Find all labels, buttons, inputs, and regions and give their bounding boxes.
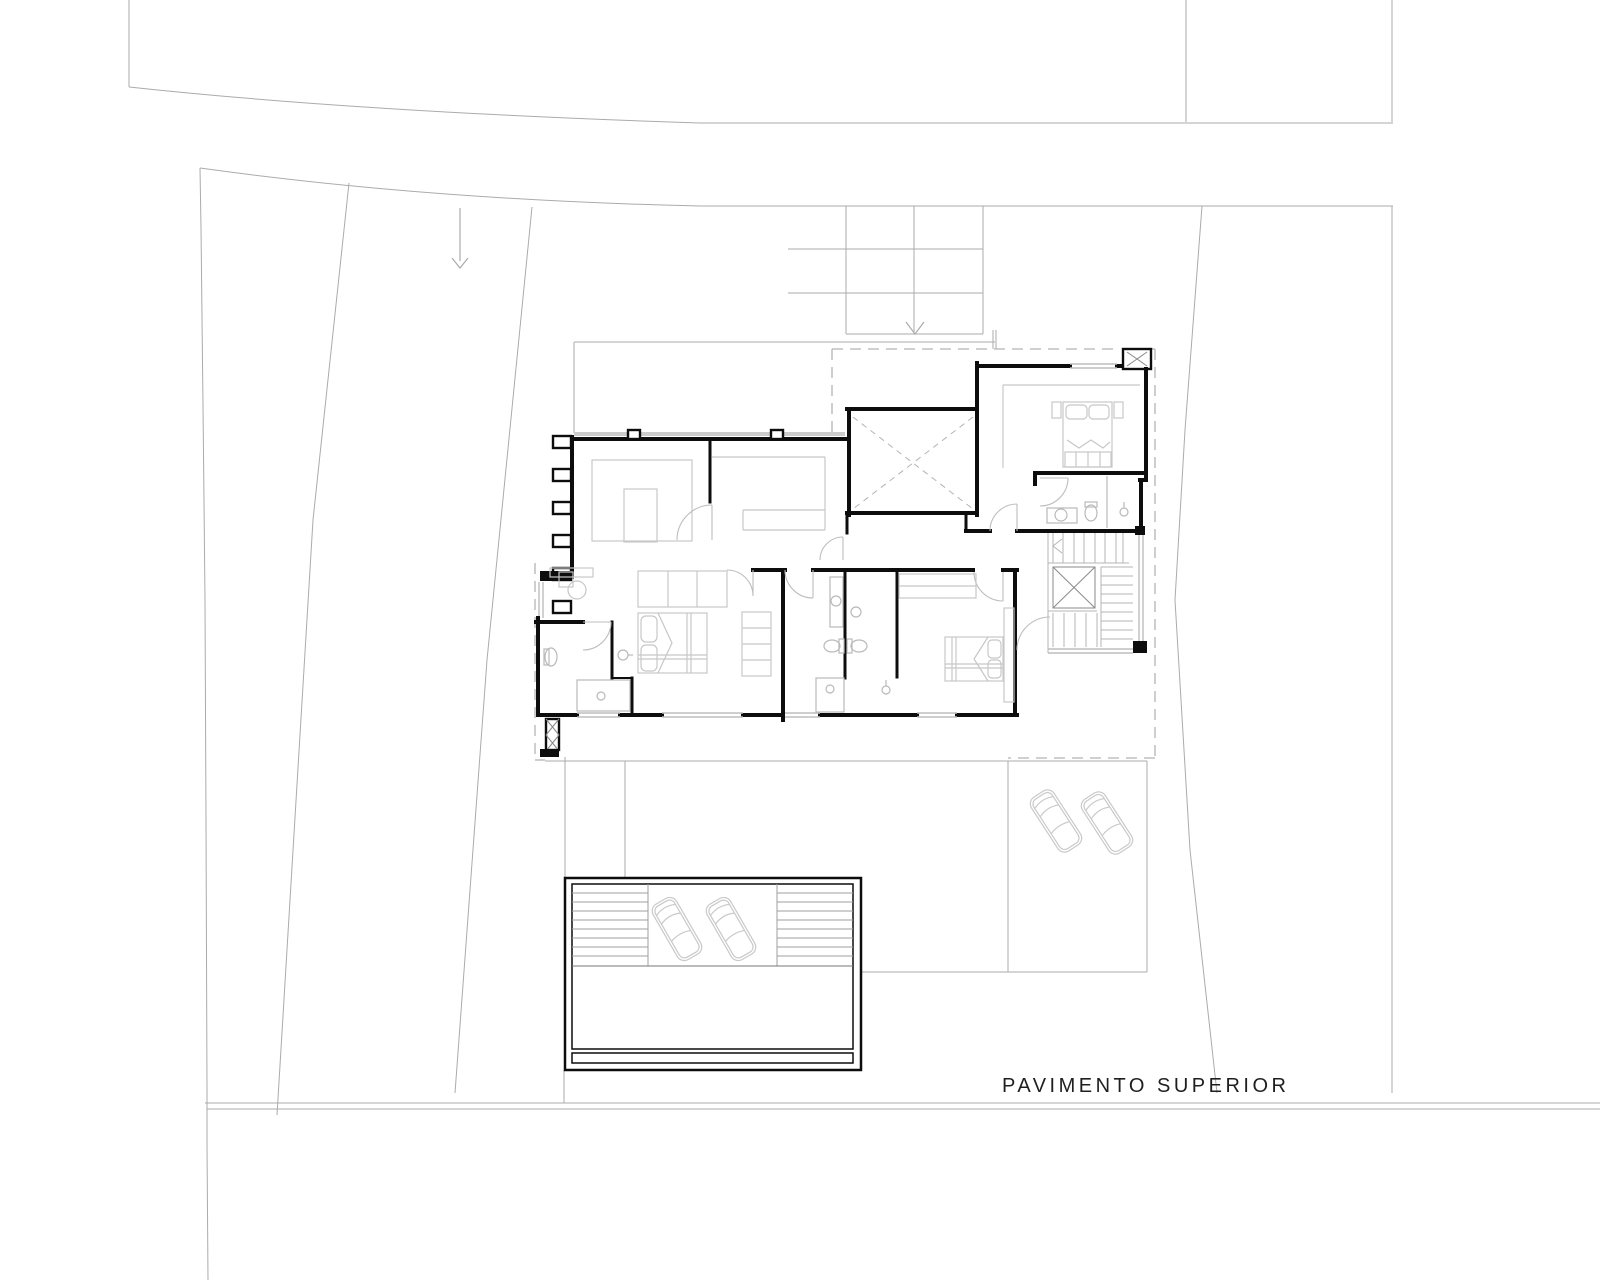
south-wall [538,713,1017,717]
west-terrace-line [455,207,532,1093]
chimney-pillar [540,719,559,757]
west-setback-line [277,183,349,1115]
entry-arrow-east [906,322,924,334]
shower [816,678,844,712]
wardrobe [638,571,727,607]
bathroom-2 [783,570,845,720]
floor-plan-drawing: PAVIMENTO SUPERIOR [0,0,1600,1280]
walk-in-closet [742,612,771,676]
entry-paving-grid [788,206,996,349]
stair-direction-arrow [1053,539,1062,553]
car-2 [703,895,758,964]
gutter-strip [572,1053,853,1063]
bathroom-1 [536,618,633,713]
door-swing [727,570,753,596]
toilet [545,648,557,666]
shower-drain [597,692,605,700]
site-boundaries [129,0,1600,1280]
arrow-down-icon [906,322,924,334]
closet-room [712,457,843,560]
window-mullion [771,430,783,439]
window-mullion [628,430,640,439]
car-1 [649,895,704,964]
chair [568,581,586,599]
staircase [1017,526,1147,653]
nightstand [1052,402,1061,418]
door-swing [677,505,712,540]
terrace-edges [545,342,1147,1103]
road-upper-edge [129,87,1393,123]
pillow [1089,405,1109,419]
rug [624,489,657,542]
wall-cap [1135,526,1145,535]
plan-title-label: PAVIMENTO SUPERIOR [1002,1075,1289,1097]
floor-plan [536,349,1151,757]
shower-head [882,686,890,694]
blanket-fold [1067,440,1110,448]
bedroom-3 [897,570,1015,715]
sink [831,596,841,606]
door-swing [1017,617,1050,650]
pergola-slats-right [777,893,853,956]
toilet [824,640,840,652]
family-room [559,440,712,587]
sink [1055,509,1067,521]
carport-pergola [565,878,861,1070]
door-swing [1040,478,1068,506]
door-swing [820,537,843,560]
void-room [847,363,977,533]
west-lot-line [200,168,208,1280]
blanket-fold [658,613,672,673]
bedroom-2 [977,349,1151,531]
door-swing [974,572,1003,601]
wardrobe [1004,608,1014,702]
door-swing [583,622,611,650]
pillow [988,640,1001,658]
door-swing [990,504,1017,531]
pillow [641,616,657,642]
bathroom-3 [847,607,890,694]
nightstand [1114,402,1123,418]
sofa-group [592,460,692,541]
car-4 [1078,789,1136,857]
sink [618,650,628,660]
shower-head [1120,508,1128,516]
shower-drain [826,685,834,693]
blanket-fold [974,637,988,681]
east-setback-line [1175,206,1217,1093]
drawing-canvas: PAVIMENTO SUPERIOR [0,0,1600,1280]
shower [577,680,630,711]
toilet [851,640,867,652]
void-x-mark [853,417,973,509]
bathroom-suite [1035,473,1146,528]
wall-cap [1133,641,1147,653]
entry-arrow-west [452,208,468,268]
car-3 [1027,787,1085,855]
road-lower-edge [200,168,1393,206]
pillow [988,660,1001,678]
pillow [641,645,657,671]
door-swing [785,570,813,598]
pillow [1066,405,1087,419]
pergola-slats-left [572,893,648,956]
sink [851,607,861,617]
stair-void-x [1053,567,1095,608]
